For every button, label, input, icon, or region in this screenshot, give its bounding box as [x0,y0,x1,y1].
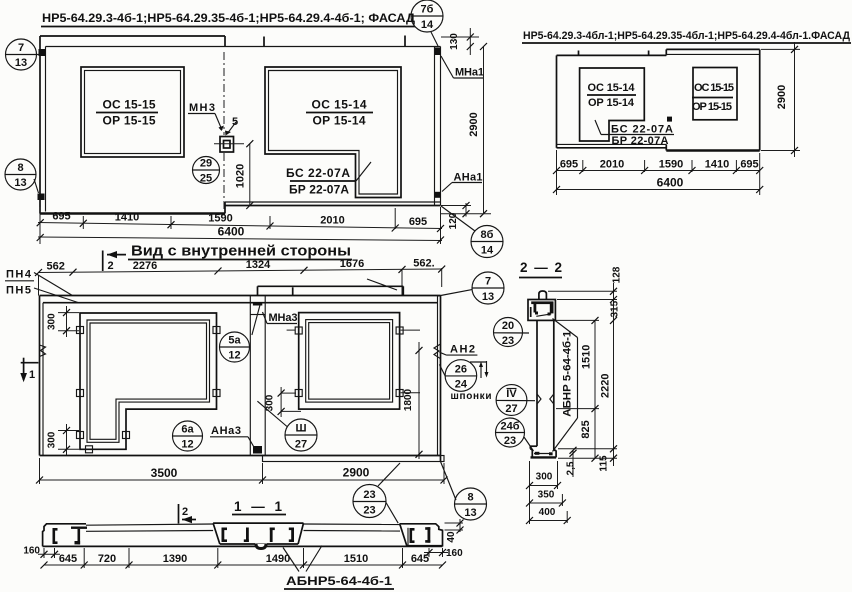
svg-text:27: 27 [295,439,307,451]
svg-text:13: 13 [464,507,476,519]
svg-text:562.: 562. [413,258,434,270]
svg-text:2010: 2010 [600,159,624,171]
svg-text:ОР 15-15: ОР 15-15 [692,101,732,113]
svg-text:АН2: АН2 [450,344,475,356]
svg-text:695: 695 [52,211,70,223]
svg-text:1410: 1410 [115,212,139,224]
svg-text:шпонки: шпонки [451,391,492,402]
svg-text:АНа3: АНа3 [211,425,241,437]
svg-text:1590: 1590 [208,213,232,225]
svg-text:ОР 15-15: ОР 15-15 [103,114,156,128]
svg-text:115: 115 [599,455,610,472]
svg-text:ОС 15-15: ОС 15-15 [103,98,156,112]
svg-text:НР5-64.29.3-4бл-1;НР5-64.29.35: НР5-64.29.3-4бл-1;НР5-64.29.35-4бл-1;НР5… [523,30,850,42]
svg-text:7б: 7б [421,4,434,16]
svg-text:2900: 2900 [468,112,480,136]
svg-text:26: 26 [455,364,467,376]
svg-text:АНа1: АНа1 [454,172,483,184]
svg-text:3500: 3500 [151,466,178,480]
svg-text:ОС 15-14: ОС 15-14 [588,82,636,94]
svg-text:1800: 1800 [403,388,414,411]
svg-text:1 — 1: 1 — 1 [234,499,282,514]
svg-text:БС 22-07А: БС 22-07А [611,124,673,136]
svg-text:2220: 2220 [600,374,612,398]
svg-text:300: 300 [47,431,58,448]
svg-text:12: 12 [181,439,193,451]
svg-text:1020: 1020 [235,164,247,188]
svg-text:ПН5: ПН5 [6,285,31,297]
svg-text:20: 20 [502,320,514,332]
svg-text:1490: 1490 [266,553,290,565]
svg-text:7: 7 [18,42,24,54]
svg-text:14: 14 [421,19,434,31]
svg-text:ПН4: ПН4 [6,269,32,281]
svg-text:695: 695 [409,216,427,228]
svg-text:24б: 24б [500,421,519,433]
svg-text:1324: 1324 [246,259,271,271]
svg-text:2: 2 [182,506,188,518]
svg-text:2900: 2900 [776,85,788,109]
svg-text:13: 13 [14,177,26,189]
svg-text:ОР 15-14: ОР 15-14 [313,114,366,128]
svg-text:8: 8 [467,492,473,504]
svg-text:БР 22-07А: БР 22-07А [289,183,349,197]
svg-text:29: 29 [200,158,212,170]
svg-text:6а: 6а [181,424,194,436]
svg-text:130: 130 [449,33,460,50]
svg-text:720: 720 [98,553,116,565]
svg-text:25: 25 [200,173,212,185]
svg-text:ОР 15-14: ОР 15-14 [588,97,635,109]
svg-text:13: 13 [15,57,27,69]
svg-text:695: 695 [740,159,758,171]
svg-text:562: 562 [47,261,65,273]
svg-text:5а: 5а [228,335,241,347]
svg-text:300: 300 [536,472,553,483]
svg-text:2276: 2276 [133,260,157,272]
svg-text:7: 7 [485,276,491,288]
svg-text:2900: 2900 [343,466,370,480]
svg-text:400: 400 [539,507,556,518]
svg-text:23: 23 [363,489,375,501]
svg-text:24: 24 [455,379,468,391]
svg-text:645: 645 [411,553,429,565]
svg-text:2,5: 2,5 [566,461,577,475]
svg-text:МНа3: МНа3 [269,312,298,324]
svg-text:1510: 1510 [344,553,368,565]
svg-text:23: 23 [363,505,375,517]
svg-text:Вид с внутренней стороны: Вид с внутренней стороны [131,244,351,260]
svg-text:2010: 2010 [320,215,344,227]
svg-text:160: 160 [446,548,463,559]
svg-text:14: 14 [481,245,494,257]
svg-text:2 — 2: 2 — 2 [520,260,562,275]
svg-text:27: 27 [505,403,517,415]
svg-text:2: 2 [108,260,114,272]
svg-text:Ш: Ш [295,423,306,435]
svg-text:23: 23 [504,435,516,447]
svg-text:IV: IV [506,388,517,400]
svg-text:ОС 15-14: ОС 15-14 [312,98,367,112]
svg-text:8: 8 [17,162,23,174]
svg-text:БР 22-07А: БР 22-07А [612,135,669,147]
svg-text:350: 350 [538,490,555,501]
svg-text:БС 22-07А: БС 22-07А [286,166,350,180]
svg-text:1590: 1590 [659,159,683,171]
svg-text:ОС 15-15: ОС 15-15 [694,82,734,94]
svg-text:1510: 1510 [581,345,593,369]
svg-text:300: 300 [47,313,58,330]
svg-text:МНа1: МНа1 [455,67,484,79]
svg-text:695: 695 [560,159,578,171]
svg-text:АБНР 5-64-4б-1: АБНР 5-64-4б-1 [562,331,574,417]
svg-text:1390: 1390 [163,553,187,565]
svg-text:6400: 6400 [657,176,684,190]
svg-text:160: 160 [23,546,40,557]
svg-text:13: 13 [482,291,494,303]
svg-text:315: 315 [610,300,621,317]
svg-text:6400: 6400 [218,225,245,239]
svg-text:1: 1 [29,369,35,381]
svg-text:128: 128 [612,266,623,283]
svg-text:825: 825 [580,420,592,438]
svg-text:645: 645 [59,553,77,565]
svg-text:8б: 8б [481,229,494,241]
svg-text:23: 23 [502,335,514,347]
svg-text:1410: 1410 [705,159,729,171]
svg-text:АБНР5-64-4б-1: АБНР5-64-4б-1 [286,574,392,588]
svg-text:40: 40 [446,531,457,543]
svg-text:НР5-64.29.3-4б-1;НР5-64.29.35-: НР5-64.29.3-4б-1;НР5-64.29.35-4б-1;НР5-6… [42,11,415,25]
svg-text:МН3: МН3 [189,102,215,114]
svg-text:12: 12 [228,350,240,362]
svg-text:1676: 1676 [340,258,364,270]
